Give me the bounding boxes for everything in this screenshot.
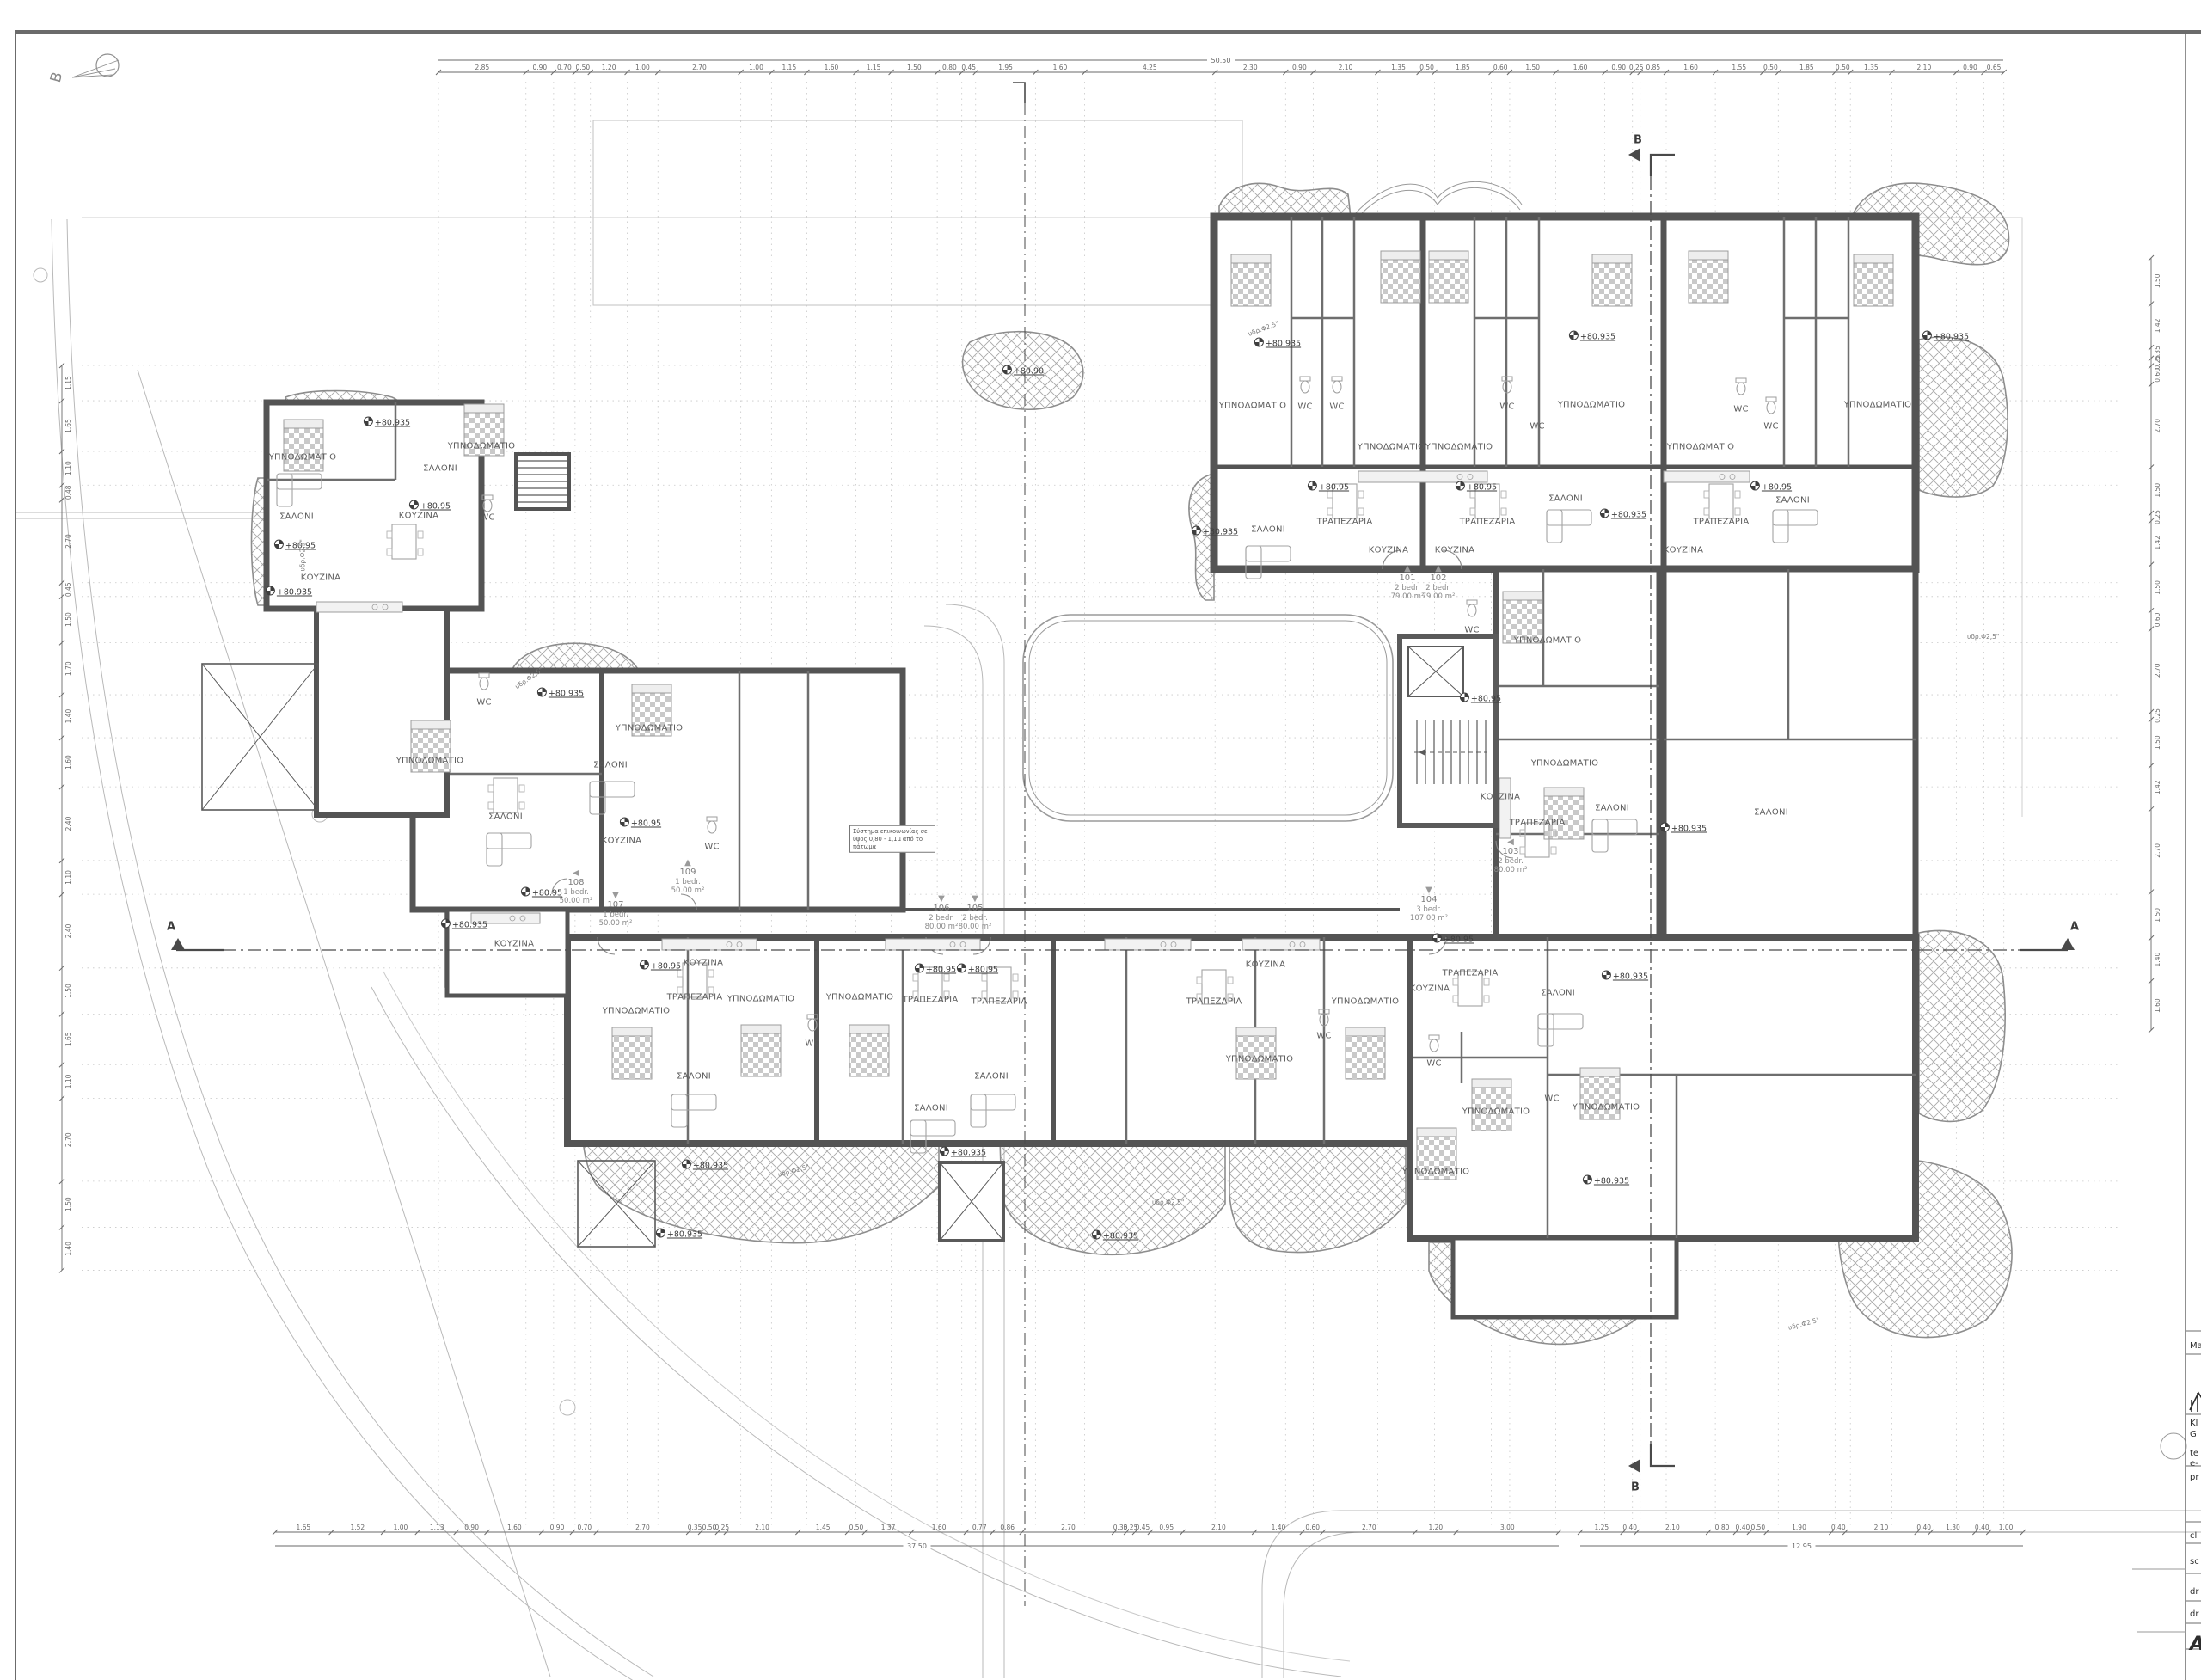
dimension-label: 1.95	[998, 64, 1013, 71]
dimension-label: 2.70	[692, 64, 707, 71]
dimension-label: 0.70	[557, 64, 572, 71]
dimension-label: 1.00	[635, 64, 650, 71]
dimension-label: 1.50	[1525, 64, 1540, 71]
dimension-label: 0.60	[1305, 1524, 1320, 1531]
dimension-label: 0.25	[715, 1524, 730, 1531]
dimension-label: 0.48	[64, 485, 72, 500]
dimension-label: 2.70	[635, 1524, 650, 1531]
dimension-label: 0.25	[2154, 708, 2161, 723]
dimension-label: 3.00	[1500, 1524, 1515, 1531]
dimension-label: 1.50	[2154, 580, 2161, 595]
dimension-label: 1.60	[825, 64, 839, 71]
dimension-label: 1.20	[602, 64, 616, 71]
dimension-label: 2.70	[64, 534, 72, 549]
dimension-label: 1.15	[782, 64, 797, 71]
dimension-label: 1.85	[1456, 64, 1470, 71]
dimension-label: 1.15	[64, 376, 72, 390]
dimension-label: 2.40	[64, 816, 72, 831]
dimension-label: 0.80	[1715, 1524, 1730, 1531]
dimension-label: 1.10	[64, 870, 72, 885]
dimension-label: 0.25	[2154, 510, 2161, 524]
dimension-label: 0.90	[464, 1524, 479, 1531]
dimension-label: 1.65	[296, 1524, 310, 1531]
dimension-label: 1.10	[64, 461, 72, 475]
dimension-label: 0.90	[532, 64, 547, 71]
dimension-label: 1.65	[64, 1032, 72, 1046]
dimension-label: 1.50	[2154, 273, 2161, 288]
dimension-label: 0.35	[688, 1524, 702, 1531]
dimension-label: 0.50	[1836, 64, 1850, 71]
dimension-label: 1.42	[2154, 536, 2161, 550]
dimension-label: 2.85	[475, 64, 490, 71]
dimension-label: 0.95	[1159, 1524, 1174, 1531]
dimension-total-label: 37.50	[907, 1542, 927, 1550]
dimension-label: 1.42	[2154, 318, 2161, 333]
dimension-label: 1.60	[64, 755, 72, 769]
dimension-label: 2.10	[1339, 64, 1353, 71]
dimension-label: 2.70	[1061, 1524, 1076, 1531]
dimension-label: 2.70	[2154, 663, 2161, 678]
courtyard-outline	[1023, 615, 1393, 821]
dimension-label: 1.50	[64, 612, 72, 627]
dimension-label: 0.60	[2154, 612, 2161, 627]
dimension-label: 0.86	[1000, 1524, 1015, 1531]
dimension-label: 1.60	[1573, 64, 1588, 71]
dimension-total-label: 12.95	[1792, 1542, 1812, 1550]
dimension-label: 1.60	[2154, 998, 2161, 1013]
drawing-sheet: 2.850.900.700.501.201.002.701.001.151.60…	[0, 0, 2201, 1680]
dimension-label: 1.20	[1429, 1524, 1444, 1531]
dimension-label: 0.50	[575, 64, 590, 71]
dimension-label: 2.40	[64, 923, 72, 938]
dimension-label: 2.10	[1917, 64, 1932, 71]
dimension-label: 1.50	[2154, 908, 2161, 923]
dimension-label: 2.70	[2154, 419, 2161, 433]
dimension-label: 2.70	[2154, 843, 2161, 858]
dimension-label: 0.50	[1763, 64, 1778, 71]
floor-plan-canvas: 2.850.900.700.501.201.002.701.001.151.60…	[0, 0, 2201, 1680]
dimension-label: 1.35	[1391, 64, 1406, 71]
dimension-label: 0.45	[64, 582, 72, 597]
dimension-label: 1.15	[867, 64, 881, 71]
dimension-label: 1.70	[64, 661, 72, 676]
dimension-label: 1.50	[64, 984, 72, 998]
dimension-label: 1.40	[1272, 1524, 1286, 1531]
dimension-label: 0.70	[577, 1524, 592, 1531]
dimension-label: 0.45	[1136, 1524, 1150, 1531]
dimension-label: 1.00	[1999, 1524, 2014, 1531]
dimension-label: 2.30	[1243, 64, 1258, 71]
dimension-label: 1.13	[430, 1524, 444, 1531]
dimension-label: 1.40	[64, 1242, 72, 1256]
dimension-label: 0.90	[550, 1524, 565, 1531]
dimension-total-label: 50.50	[1211, 57, 1231, 64]
dimension-label: 0.25	[2154, 355, 2161, 370]
dimension-label: 1.60	[1053, 64, 1068, 71]
dimension-label: 2.70	[1362, 1524, 1376, 1531]
dimension-label: 1.40	[64, 708, 72, 723]
dimension-label: 1.90	[1792, 1524, 1806, 1531]
dimension-label: 2.10	[755, 1524, 769, 1531]
dimension-label: 2.10	[1665, 1524, 1680, 1531]
dimension-label: 1.85	[1799, 64, 1814, 71]
dimension-label: 2.10	[1874, 1524, 1889, 1531]
dimension-label: 0.90	[1963, 64, 1977, 71]
dimension-label: 1.25	[1595, 1524, 1609, 1531]
dimension-label: 1.30	[1946, 1524, 1960, 1531]
dimension-label: 0.80	[942, 64, 957, 71]
dimension-label: 1.60	[507, 1524, 522, 1531]
dimension-label: 0.85	[1646, 64, 1660, 71]
dimension-label: 2.70	[64, 1132, 72, 1147]
dimension-label: 1.55	[1732, 64, 1746, 71]
dimension-label: 1.40	[2154, 953, 2161, 967]
dimension-label: 0.60	[2154, 368, 2161, 383]
dimension-label: 0.50	[849, 1524, 864, 1531]
dimension-label: 0.77	[972, 1524, 987, 1531]
dimension-label: 1.50	[907, 64, 922, 71]
dimension-label: 1.35	[1864, 64, 1879, 71]
dimension-label: 1.50	[2154, 735, 2161, 750]
dimension-label: 1.60	[932, 1524, 947, 1531]
dimension-label: 0.65	[1987, 64, 2002, 71]
dimension-label: 0.25	[1629, 64, 1644, 71]
dimension-label: 1.00	[749, 64, 763, 71]
dimension-label: 0.90	[1611, 64, 1626, 71]
dimension-label: 0.60	[1493, 64, 1508, 71]
dimension-label: 0.50	[1419, 64, 1434, 71]
dimension-label: 1.50	[2154, 483, 2161, 498]
dimension-label: 1.45	[816, 1524, 831, 1531]
dimension-label: 2.10	[1211, 1524, 1226, 1531]
dimension-label: 1.60	[1683, 64, 1698, 71]
dimension-label: 1.52	[350, 1524, 365, 1531]
dimension-label: 1.42	[2154, 780, 2161, 794]
dimension-label: 1.00	[394, 1524, 408, 1531]
dimension-label: 1.50	[64, 1197, 72, 1211]
dimension-label: 1.10	[64, 1074, 72, 1088]
dimension-label: 0.50	[1750, 1524, 1765, 1531]
dimension-label: 1.37	[881, 1524, 896, 1531]
dimension-label: 0.90	[1292, 64, 1307, 71]
dimension-label: 4.25	[1143, 64, 1157, 71]
dimension-label: 1.65	[64, 419, 72, 433]
